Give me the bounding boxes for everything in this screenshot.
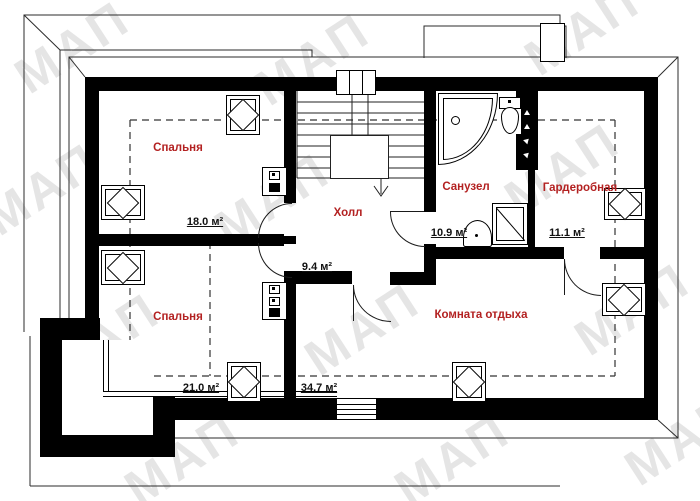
window	[337, 399, 376, 419]
wall-bedroom-divider	[99, 234, 284, 246]
area-label-lounge: 34.7 м²	[301, 382, 337, 394]
chimney	[540, 23, 565, 62]
wall-left	[85, 77, 99, 340]
room-label-bathroom: Санузел	[442, 181, 489, 193]
area-label-bedroom-2: 21.0 м²	[183, 382, 219, 394]
door-leaf	[353, 285, 354, 321]
area-label-hall: 9.4 м²	[302, 261, 332, 273]
wall-bathroom-wardrobe	[528, 170, 535, 247]
area-label-bathroom: 10.9 м²	[431, 227, 467, 239]
room-label-bedroom-2: Спальня	[153, 311, 203, 323]
room-label-lounge: Комната отдыха	[434, 309, 527, 321]
terrace-parapet	[40, 318, 100, 340]
wall-hall-bathroom	[424, 91, 436, 212]
floor-plan: МАП МАП МАП МАП МАП МАП МАП МАП МАП МАП …	[0, 0, 700, 501]
electrical-panel-icon	[262, 167, 287, 196]
roof-window-icon	[101, 250, 145, 285]
room-label-wardrobe: Гардеробная	[543, 182, 617, 194]
vent-mark-icon	[524, 124, 530, 129]
room-label-hall: Холл	[334, 207, 363, 219]
chimney	[336, 70, 376, 95]
roof-window-icon	[452, 362, 486, 402]
area-label-wardrobe: 11.1 м²	[549, 227, 585, 239]
terrace-parapet	[153, 396, 175, 457]
shower-icon	[492, 203, 528, 245]
roof-window-icon	[101, 185, 145, 220]
door-leaf	[390, 211, 424, 212]
roof-window-icon	[602, 283, 646, 316]
wall-mid	[424, 247, 564, 259]
roof-window-icon	[227, 362, 261, 402]
wall-right	[644, 77, 658, 420]
sink-icon	[463, 220, 492, 247]
area-label-bedroom-1: 18.0 м²	[187, 216, 223, 228]
roof-edge-line	[103, 396, 337, 397]
door-leaf	[564, 259, 565, 295]
electrical-panel-icon	[262, 282, 287, 320]
vent-mark-icon	[524, 110, 530, 115]
stair-landing	[330, 135, 389, 179]
wall-hall-lounge	[390, 272, 424, 285]
toilet-icon	[499, 97, 521, 134]
wall-mid	[600, 247, 644, 259]
room-label-bedroom-1: Спальня	[153, 142, 203, 154]
watermark: МАП	[514, 0, 650, 87]
roof-edge-line	[103, 340, 104, 392]
roof-window-icon	[226, 95, 260, 135]
roof-edge-line	[108, 340, 109, 392]
